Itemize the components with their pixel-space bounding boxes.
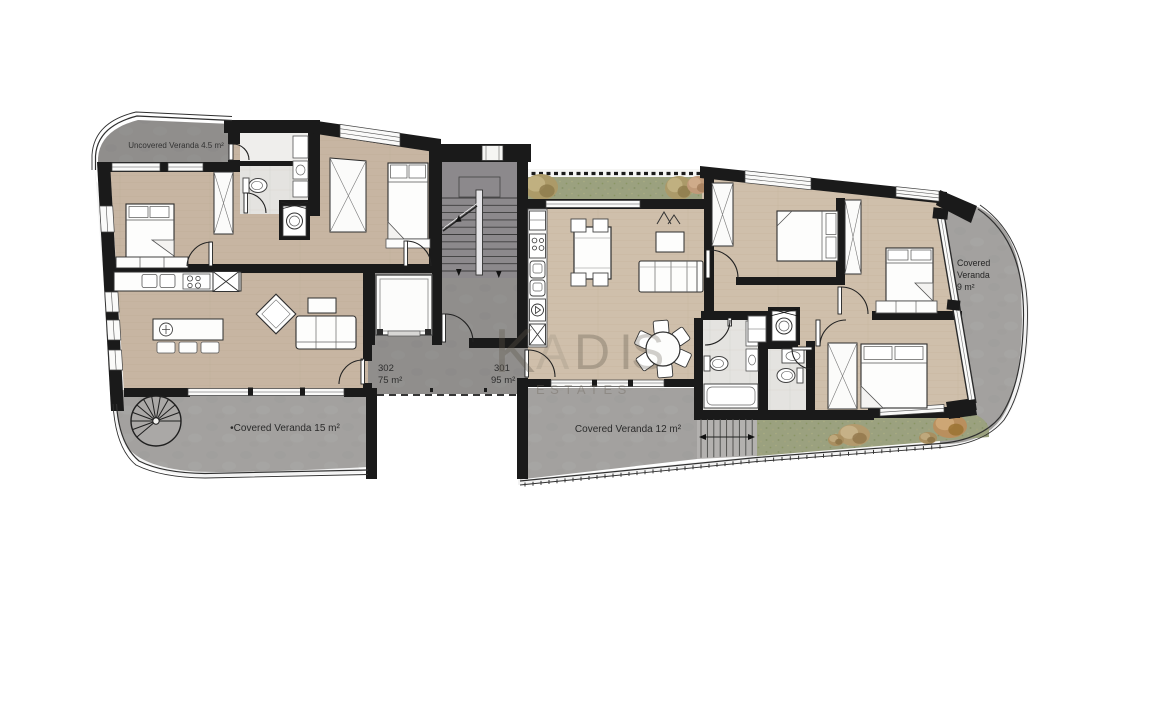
svg-text:S: S [631, 324, 664, 380]
svg-text:ESTATES: ESTATES [536, 382, 632, 397]
svg-text:302: 302 [378, 363, 394, 374]
svg-text:•Covered Veranda 15 m²: •Covered Veranda 15 m² [230, 423, 340, 434]
svg-text:Covered: Covered [957, 258, 990, 268]
svg-text:Veranda: Veranda [957, 270, 990, 280]
svg-text:Covered Veranda 12 m²: Covered Veranda 12 m² [575, 424, 682, 435]
svg-text:A: A [536, 324, 570, 380]
svg-text:9 m²: 9 m² [957, 282, 975, 292]
svg-text:D: D [574, 324, 610, 380]
svg-text:Uncovered Veranda 4.5 m²: Uncovered Veranda 4.5 m² [128, 141, 224, 150]
svg-text:K: K [494, 317, 535, 386]
svg-text:75 m²: 75 m² [378, 375, 402, 386]
